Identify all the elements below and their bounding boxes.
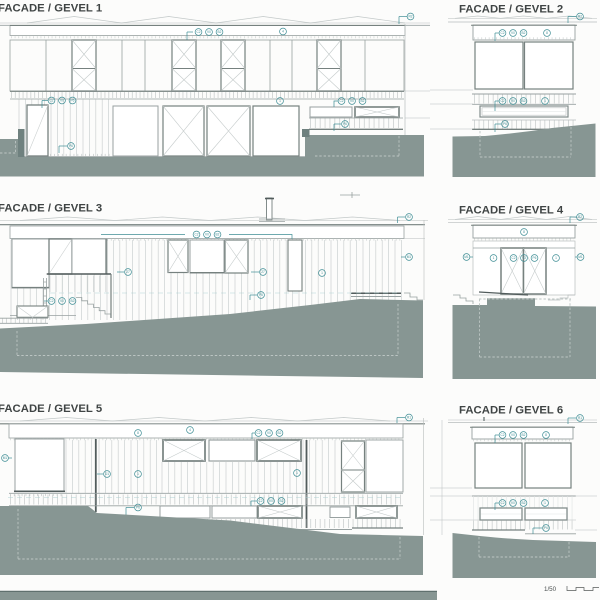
svg-text:V0: V0 — [269, 499, 273, 503]
svg-text:1: 1 — [296, 471, 298, 475]
svg-text:R2: R2 — [408, 15, 412, 19]
svg-text:V0: V0 — [350, 99, 354, 103]
svg-text:D1: D1 — [105, 472, 109, 476]
svg-text:M1: M1 — [3, 456, 8, 460]
svg-text:B2: B2 — [280, 499, 284, 503]
svg-text:1: 1 — [279, 99, 281, 103]
svg-text:FACADE / GEVEL 1: FACADE / GEVEL 1 — [0, 3, 102, 15]
svg-text:B2: B2 — [216, 233, 220, 237]
svg-text:C2: C2 — [500, 501, 504, 505]
svg-text:FACADE / GEVEL 3: FACADE / GEVEL 3 — [0, 203, 102, 215]
svg-text:27: 27 — [261, 270, 265, 274]
svg-text:P6: P6 — [343, 122, 347, 126]
svg-text:P6: P6 — [69, 144, 73, 148]
svg-text:R1: R1 — [578, 416, 582, 420]
svg-text:P6: P6 — [503, 122, 507, 126]
svg-text:C2: C2 — [339, 99, 343, 103]
svg-text:C2: C2 — [511, 256, 515, 260]
svg-text:B2: B2 — [522, 31, 526, 35]
svg-text:P6: P6 — [533, 256, 537, 260]
svg-text:27: 27 — [126, 270, 130, 274]
svg-text:C2: C2 — [194, 233, 198, 237]
svg-text:1/50: 1/50 — [544, 586, 557, 593]
svg-text:C2: C2 — [49, 299, 53, 303]
svg-text:1: 1 — [321, 271, 323, 275]
svg-text:R2: R2 — [578, 215, 582, 219]
svg-text:V0: V0 — [511, 31, 515, 35]
svg-text:C2: C2 — [196, 30, 200, 34]
svg-text:B2: B2 — [71, 299, 75, 303]
svg-text:1: 1 — [544, 99, 546, 103]
svg-text:B2: B2 — [522, 433, 526, 437]
svg-text:1: 1 — [555, 256, 557, 260]
svg-text:8: 8 — [523, 230, 525, 234]
svg-text:C2: C2 — [256, 431, 260, 435]
svg-text:4: 4 — [189, 428, 191, 432]
svg-text:V0: V0 — [207, 30, 211, 34]
svg-text:V0: V0 — [205, 233, 209, 237]
svg-text:B2: B2 — [218, 30, 222, 34]
svg-text:B2: B2 — [361, 99, 365, 103]
svg-text:1: 1 — [137, 472, 139, 476]
svg-text:V0: V0 — [60, 299, 64, 303]
svg-text:B2: B2 — [522, 501, 526, 505]
svg-text:C2: C2 — [500, 31, 504, 35]
svg-text:M1: M1 — [407, 255, 412, 259]
svg-text:V0: V0 — [511, 433, 515, 437]
svg-text:V0: V0 — [511, 501, 515, 505]
svg-text:C2: C2 — [500, 433, 504, 437]
svg-text:R1: R1 — [407, 416, 411, 420]
svg-text:R2: R2 — [578, 15, 582, 19]
svg-text:P6: P6 — [544, 526, 548, 530]
svg-text:R2: R2 — [407, 215, 411, 219]
svg-text:8: 8 — [545, 433, 547, 437]
svg-text:P6: P6 — [136, 506, 140, 510]
svg-text:FACADE / GEVEL 2: FACADE / GEVEL 2 — [459, 4, 563, 16]
svg-text:1: 1 — [544, 501, 546, 505]
svg-text:V3: V3 — [522, 256, 526, 260]
svg-text:8: 8 — [137, 431, 139, 435]
svg-text:P6: P6 — [71, 99, 75, 103]
svg-text:C2: C2 — [49, 99, 53, 103]
svg-text:C2: C2 — [500, 99, 504, 103]
svg-text:B2: B2 — [278, 431, 282, 435]
svg-text:B2: B2 — [522, 99, 526, 103]
svg-text:M1: M1 — [578, 255, 583, 259]
svg-text:8: 8 — [546, 31, 548, 35]
svg-text:V0: V0 — [267, 431, 271, 435]
svg-text:V0: V0 — [511, 99, 515, 103]
svg-text:FACADE / GEVEL 6: FACADE / GEVEL 6 — [459, 405, 563, 417]
svg-text:C2: C2 — [258, 499, 262, 503]
svg-text:M1: M1 — [464, 255, 469, 259]
svg-text:V0: V0 — [60, 99, 64, 103]
svg-text:FACADE / GEVEL 5: FACADE / GEVEL 5 — [0, 403, 102, 415]
svg-text:FACADE / GEVEL 4: FACADE / GEVEL 4 — [459, 205, 564, 217]
svg-text:P6: P6 — [259, 293, 263, 297]
svg-text:4: 4 — [282, 30, 284, 34]
svg-text:1: 1 — [493, 256, 495, 260]
